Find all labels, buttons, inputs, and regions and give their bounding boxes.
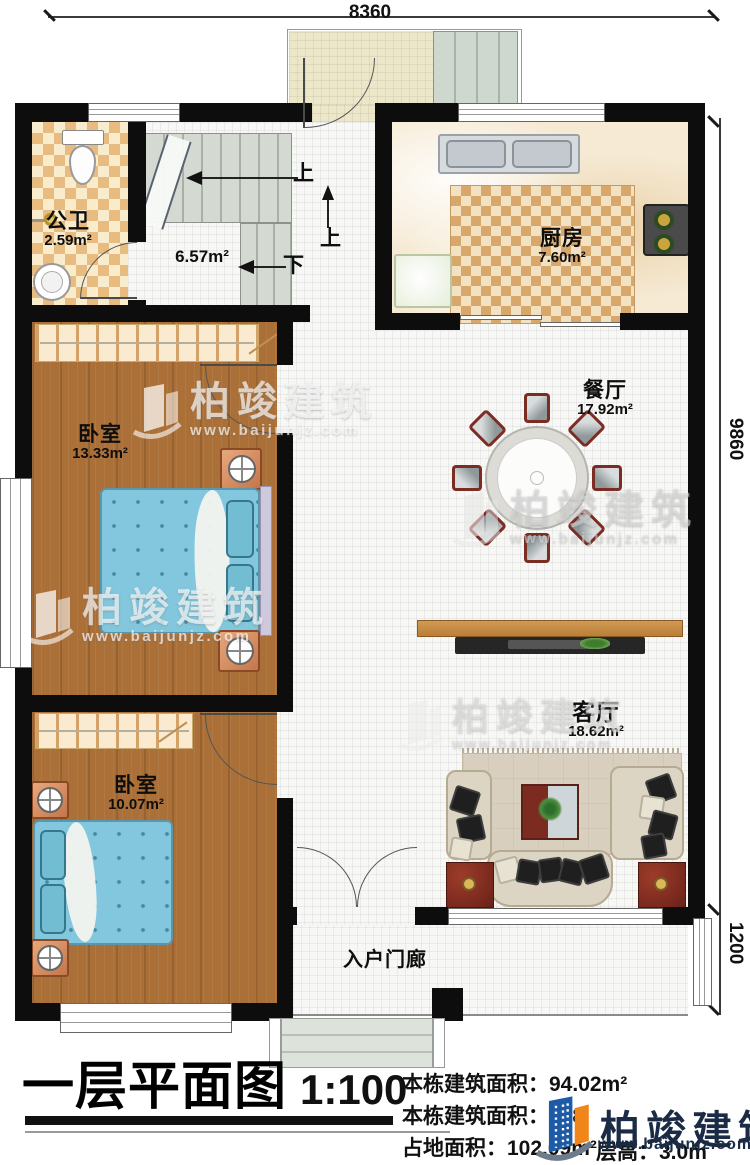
- room-label-bedroom-bottom: 卧室 10.07m²: [102, 775, 170, 813]
- wardrobe: [35, 324, 259, 362]
- nightstand-lamp: [37, 945, 63, 971]
- tv-plant: [580, 638, 610, 649]
- dining-chair: [524, 533, 550, 563]
- nightstand-lamp: [37, 787, 63, 813]
- floor-plan: 8360 9860 1200 上 上 下: [0, 0, 750, 1165]
- room-label-kitchen: 厨房 7.60m²: [508, 228, 616, 266]
- wall: [415, 907, 448, 925]
- brand-logo-icon: [532, 1094, 594, 1165]
- wall: [277, 322, 293, 365]
- stair-up-mid-label: 上: [320, 228, 341, 249]
- kitchen-sink-basin: [446, 140, 506, 168]
- dining-chair: [452, 465, 482, 491]
- dining-chair: [592, 465, 622, 491]
- stair-up-arrowhead: [186, 171, 202, 185]
- room-label-dining: 餐厅 17.92m²: [568, 380, 642, 418]
- wall: [15, 666, 32, 1021]
- bed-headboard: [260, 486, 272, 636]
- nightstand-lamp: [228, 455, 256, 483]
- stair-up-arrow-line: [202, 177, 298, 179]
- wash-basin-inner: [41, 271, 63, 293]
- dimension-label-right-lower: 1200: [724, 922, 746, 982]
- entry-steps: [281, 1018, 433, 1068]
- dimension-label-right-upper: 9860: [724, 418, 746, 488]
- title-underline-thick: [25, 1116, 393, 1125]
- sofa-pillow: [640, 832, 668, 860]
- tv-wall: [417, 620, 683, 637]
- wardrobe-rail: [40, 342, 253, 344]
- coffee-table-plant: [537, 797, 563, 821]
- wall: [620, 313, 688, 330]
- kitchen-sliding-door: [460, 315, 542, 320]
- stove-burner: [654, 234, 674, 254]
- wall: [280, 907, 297, 925]
- stove-burner: [654, 210, 674, 230]
- window: [693, 918, 712, 1006]
- wardrobe-diagonal: [159, 721, 188, 742]
- rear-porch-steps: [433, 31, 518, 105]
- dimension-label-top: 8360: [320, 2, 420, 24]
- wardrobe: [35, 713, 193, 749]
- window: [458, 103, 605, 122]
- bed-pillow: [40, 830, 66, 880]
- sofa-pillow: [448, 836, 473, 861]
- kitchen-sliding-door: [540, 322, 622, 327]
- room-label-porch: 入户门廊: [320, 950, 450, 971]
- room-label-bathroom: 公卫 2.59m²: [36, 211, 100, 249]
- room-label-bedroom-top: 卧室 13.33m²: [66, 424, 134, 462]
- bed-pillow: [40, 884, 66, 934]
- fridge: [394, 254, 452, 308]
- room-label-stairhall: 6.57m²: [168, 248, 236, 266]
- plan-scale: 1:100: [300, 1066, 407, 1114]
- wall: [15, 103, 32, 480]
- window: [88, 103, 180, 122]
- dining-table-center: [530, 471, 544, 485]
- dining-chair: [524, 393, 550, 423]
- kitchen-sink-basin: [512, 140, 572, 168]
- stair-up-vertical-line: [327, 196, 329, 228]
- brand-logo-url: www.baijunjz.com: [598, 1136, 750, 1154]
- bed-pillow: [226, 500, 254, 558]
- wall: [688, 103, 705, 918]
- entry-porch-edge: [293, 1014, 688, 1016]
- bay-window: [0, 478, 32, 668]
- window: [448, 908, 663, 925]
- stair-down-label: 下: [283, 255, 304, 276]
- wall: [15, 305, 310, 322]
- stair-up-vertical-arrowhead: [322, 185, 334, 200]
- side-table-medallion: [654, 877, 668, 891]
- dimension-tick: [707, 903, 720, 916]
- dimension-tick: [707, 115, 720, 128]
- wall: [15, 1003, 62, 1021]
- wall: [375, 103, 392, 330]
- room-label-living: 客厅 18.62m²: [558, 700, 634, 740]
- wall: [180, 103, 312, 122]
- wall: [392, 313, 460, 330]
- bed-pillow: [226, 564, 254, 622]
- plan-title: 一层平面图: [22, 1044, 287, 1119]
- wall: [15, 695, 293, 712]
- wardrobe-rail: [39, 730, 189, 732]
- stair-down-arrowhead: [238, 260, 254, 274]
- bay-window: [60, 1003, 232, 1033]
- nightstand-lamp: [226, 637, 254, 665]
- entry-step-jamb: [433, 1018, 445, 1068]
- dimension-line-right: [719, 118, 721, 1015]
- title-underline-thin: [25, 1131, 450, 1133]
- wall: [432, 988, 463, 1021]
- side-table-medallion: [462, 877, 476, 891]
- stair-up-label: 上: [293, 163, 314, 184]
- wall: [128, 122, 146, 242]
- wall: [277, 433, 293, 695]
- toilet-tank: [62, 130, 104, 145]
